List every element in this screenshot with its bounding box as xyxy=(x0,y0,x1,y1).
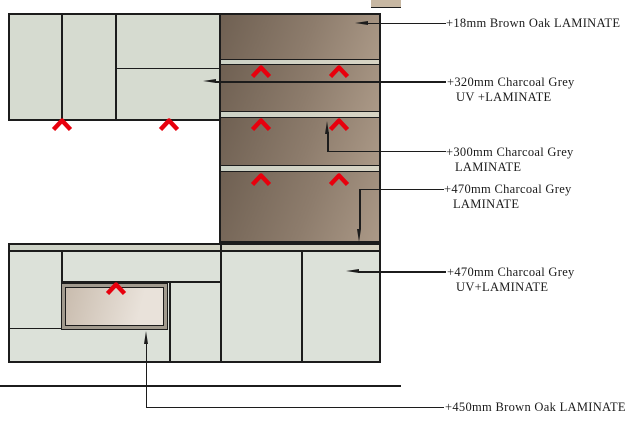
grain-direction-chevron-icon xyxy=(328,118,350,131)
leader-line xyxy=(367,23,446,25)
grain-direction-chevron-icon xyxy=(328,173,350,186)
shelf-strip xyxy=(221,165,379,172)
grain-direction-chevron-icon xyxy=(250,118,272,131)
annotation-text: +450mm Brown Oak LAMINATE xyxy=(445,400,626,415)
annotation-label-300mm-charcoal: +300mm Charcoal Grey LAMINATE xyxy=(446,145,574,175)
annotation-text: +300mm Charcoal Grey xyxy=(446,145,574,160)
base-cabinet-divider xyxy=(10,250,379,252)
laminate-elevation-drawing: +18mm Brown Oak LAMINATE +320mm Charcoal… xyxy=(0,0,633,421)
leader-line xyxy=(327,132,329,152)
grain-direction-chevron-icon xyxy=(250,65,272,78)
leader-line xyxy=(359,189,361,229)
annotation-label-320mm-charcoal-uv: +320mm Charcoal Grey UV +LAMINATE xyxy=(447,75,575,105)
tall-cabinet-panel xyxy=(219,13,381,243)
laminate-band xyxy=(221,172,379,241)
laminate-band xyxy=(221,65,379,111)
base-cabinet-divider xyxy=(10,328,62,330)
cropped-panel-fragment xyxy=(371,0,401,8)
annotation-label-470mm-charcoal-uv: +470mm Charcoal Grey UV+LAMINATE xyxy=(447,265,575,295)
shelf-strip xyxy=(221,111,379,118)
leader-line xyxy=(146,343,148,408)
annotation-label-450mm-brown-oak: +450mm Brown Oak LAMINATE xyxy=(445,400,626,415)
annotation-text: UV +LAMINATE xyxy=(447,90,575,105)
base-cabinet-divider xyxy=(220,245,222,362)
base-cabinet-divider xyxy=(169,281,171,362)
arrowhead-down-icon xyxy=(357,229,361,242)
leader-line xyxy=(359,189,444,191)
annotation-text: +470mm Charcoal Grey xyxy=(444,182,572,197)
base-cabinet-divider xyxy=(301,250,303,362)
annotation-text: +470mm Charcoal Grey xyxy=(447,265,575,280)
grain-direction-chevron-icon xyxy=(328,65,350,78)
annotation-text: UV+LAMINATE xyxy=(447,280,575,295)
annotation-text: LAMINATE xyxy=(446,160,574,175)
annotation-text: +18mm Brown Oak LAMINATE xyxy=(446,16,620,31)
leader-line xyxy=(215,81,446,83)
leader-line xyxy=(146,407,444,409)
laminate-band xyxy=(221,118,379,165)
grain-direction-chevron-icon xyxy=(158,118,180,131)
annotation-text: LAMINATE xyxy=(444,197,572,212)
annotation-text: +320mm Charcoal Grey xyxy=(447,75,575,90)
grain-direction-chevron-icon xyxy=(105,282,127,295)
annotation-label-18mm-brown-oak: +18mm Brown Oak LAMINATE xyxy=(446,16,620,31)
leader-line xyxy=(327,151,446,153)
wall-cabinet-divider xyxy=(115,68,221,70)
grain-direction-chevron-icon xyxy=(250,173,272,186)
floor-line xyxy=(0,385,401,387)
leader-line xyxy=(358,271,446,273)
annotation-label-470mm-charcoal: +470mm Charcoal Grey LAMINATE xyxy=(444,182,572,212)
grain-direction-chevron-icon xyxy=(51,118,73,131)
wall-cabinet-divider xyxy=(61,13,63,121)
